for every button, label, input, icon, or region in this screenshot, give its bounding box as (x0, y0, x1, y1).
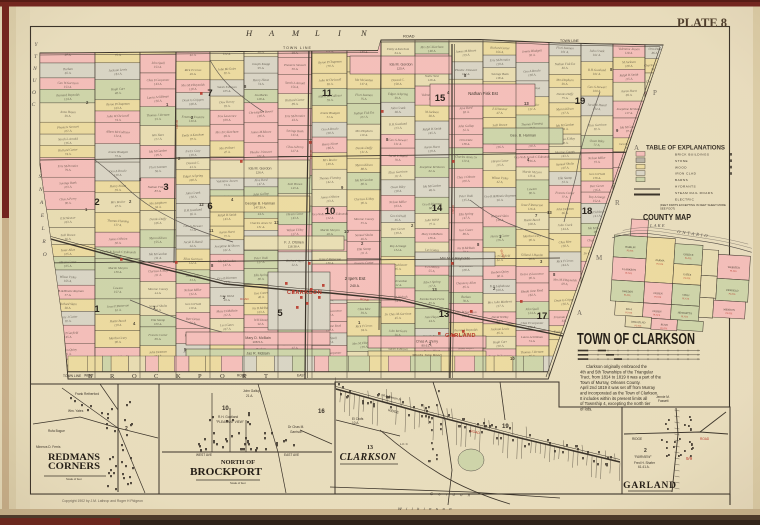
svg-text:IRON CLAD: IRON CLAD (675, 172, 697, 176)
svg-text:Scale of feet: Scale of feet (230, 481, 246, 485)
svg-text:CHILI: CHILI (682, 294, 689, 297)
svg-text:K: K (176, 373, 181, 380)
svg-text:TOWN OF CLARKSON: TOWN OF CLARKSON (577, 331, 695, 348)
svg-text:COUNTY MAP: COUNTY MAP (643, 213, 691, 222)
svg-text:TOWN LINE: TOWN LINE (560, 39, 580, 43)
svg-text:L.F. C: L.F. C (400, 442, 409, 446)
svg-text:BROCKPORT: BROCKPORT (190, 467, 262, 478)
svg-text:126 A.: 126 A. (256, 171, 265, 175)
svg-text:PLATE: PLATE (627, 249, 635, 252)
svg-text:4th and 5th Townships of the T: 4th and 5th Townships of the Triangular (580, 369, 654, 374)
svg-text:19: 19 (502, 424, 509, 430)
svg-text:WEST AVE: WEST AVE (196, 453, 212, 457)
svg-text:C: C (32, 102, 36, 108)
svg-text:2: 2 (644, 448, 647, 454)
svg-text:STONE: STONE (675, 159, 688, 163)
svg-text:RIGA: RIGA (626, 308, 633, 311)
svg-text:Scale of feet: Scale of feet (66, 477, 82, 481)
svg-text:SEE FOOT): SEE FOOT) (660, 207, 675, 211)
svg-text:WEST: WEST (84, 374, 94, 378)
svg-text:118.38 A.: 118.38 A. (288, 245, 301, 249)
svg-text:R: R (41, 239, 46, 245)
svg-text:15: 15 (435, 93, 446, 104)
svg-text:M: M (596, 254, 603, 262)
svg-text:14: 14 (432, 203, 443, 214)
svg-text:16: 16 (318, 409, 325, 415)
svg-text:PLATE: PLATE (681, 315, 689, 318)
svg-text:O: O (132, 373, 137, 380)
svg-text:April 2nd 1819 it was set off: April 2nd 1819 it was set off from Murra… (580, 385, 656, 390)
svg-text:It includes within its present: It includes within its present limits al… (580, 396, 647, 401)
svg-text:E: E (40, 213, 45, 219)
svg-text:BARNS: BARNS (675, 178, 688, 182)
svg-text:10: 10 (344, 229, 349, 234)
svg-text:Mrs M.V. Reynolds: Mrs M.V. Reynolds (440, 257, 470, 261)
svg-text:ROAD: ROAD (451, 205, 455, 215)
svg-text:PLATE: PLATE (683, 277, 691, 280)
svg-text:R: R (615, 199, 620, 207)
svg-text:18: 18 (582, 206, 593, 217)
svg-text:Frank Retherford: Frank Retherford (75, 392, 99, 396)
svg-text:TOWN LINE: TOWN LINE (63, 374, 82, 378)
svg-text:Garrison: Garrison (290, 430, 302, 434)
svg-text:1: 1 (94, 304, 100, 315)
svg-text:R: R (110, 373, 115, 380)
svg-text:21 A.: 21 A. (246, 394, 253, 398)
svg-text:O: O (220, 373, 225, 380)
svg-text:A: A (39, 200, 44, 206)
svg-text:13: 13 (547, 210, 552, 215)
svg-text:BRICK BUILDINGS: BRICK BUILDINGS (675, 153, 710, 157)
svg-text:11: 11 (209, 228, 214, 233)
svg-text:Jas R. McBain: Jas R. McBain (246, 352, 269, 356)
svg-text:H: H (245, 28, 253, 38)
svg-text:L: L (41, 226, 45, 232)
svg-text:CLARKSON: CLARKSON (340, 452, 397, 463)
svg-text:PLATE: PLATE (730, 270, 738, 273)
svg-text:PLATE: PLATE (656, 263, 664, 266)
svg-text:"FAIRVIEW": "FAIRVIEW" (634, 455, 652, 459)
svg-text:Clarkson originally embraced: Clarkson originally embraced the (586, 364, 648, 369)
svg-text:ELECTRIC: ELECTRIC (675, 197, 695, 201)
svg-text:GATES: GATES (683, 273, 692, 277)
svg-text:PLATE: PLATE (729, 293, 737, 296)
svg-text:12: 12 (199, 202, 204, 207)
svg-text:R.H. Gootland: R.H. Gootland (218, 415, 238, 419)
svg-text:Wm. Yates: Wm. Yates (68, 409, 84, 413)
svg-text:Lawton157 A.: Lawton157 A. (112, 286, 123, 294)
svg-text:PLATE: PLATE (725, 312, 733, 315)
svg-text:PLATE: PLATE (685, 257, 693, 260)
svg-text:RUSH: RUSH (661, 323, 668, 326)
svg-text:Geo. B. Harman: Geo. B. Harman (510, 134, 536, 138)
svg-text:147.30 A.: 147.30 A. (254, 206, 267, 210)
svg-text:John Gallup: John Gallup (243, 389, 260, 393)
svg-text:PLATE 8: PLATE 8 (677, 15, 727, 30)
svg-text:ROAD: ROAD (237, 374, 247, 378)
svg-text:L: L (314, 28, 320, 38)
svg-text:GREECE: GREECE (683, 253, 694, 257)
svg-text:13: 13 (367, 445, 373, 451)
svg-text:Minerva D. Ferris: Minerva D. Ferris (36, 445, 61, 449)
svg-text:HYDRANTS: HYDRANTS (675, 185, 696, 189)
svg-text:RIDGE: RIDGE (632, 437, 642, 441)
svg-text:HAMLIN: HAMLIN (625, 246, 636, 250)
svg-text:Rufa Bogue: Rufa Bogue (48, 429, 65, 433)
svg-text:STEAM RAIL ROADS: STEAM RAIL ROADS (675, 191, 713, 195)
svg-text:OGDEN: OGDEN (653, 292, 662, 296)
svg-text:13: 13 (432, 287, 437, 292)
svg-text:10: 10 (510, 356, 515, 361)
svg-text:O: O (43, 252, 47, 258)
svg-text:of Township 4, excepting the: of Township 4, excepting the north tier (580, 401, 651, 406)
svg-text:PLATE: PLATE (660, 327, 668, 330)
svg-text:M: M (291, 28, 300, 38)
svg-text:O: O (32, 90, 36, 96)
svg-text:A: A (634, 144, 639, 152)
svg-text:2: 2 (125, 426, 128, 432)
svg-text:240 A.: 240 A. (350, 284, 360, 288)
svg-text:and incorporated as the Tow: and incorporated as the Town of Clarkson… (580, 391, 658, 396)
svg-text:P: P (653, 89, 657, 97)
svg-text:CORNERS: CORNERS (48, 462, 100, 472)
svg-text:A: A (577, 309, 582, 317)
svg-text:PLATE: PLATE (653, 313, 661, 316)
svg-text:ROAD: ROAD (175, 120, 179, 130)
svg-text:13: 13 (524, 101, 529, 106)
svg-text:125 A.: 125 A. (397, 67, 406, 71)
svg-text:7: 7 (207, 88, 212, 99)
svg-text:ROAD: ROAD (700, 437, 710, 441)
svg-text:P: P (198, 373, 202, 380)
svg-text:PLATE: PLATE (625, 272, 633, 275)
svg-text:N: N (32, 66, 37, 72)
svg-text:19: 19 (575, 96, 586, 107)
svg-text:ROAD: ROAD (309, 150, 313, 160)
svg-text:6: 6 (207, 201, 212, 212)
svg-text:LAKE: LAKE (649, 223, 666, 228)
svg-text:PLATE: PLATE (682, 297, 690, 300)
svg-text:NORTH OF: NORTH OF (221, 459, 255, 466)
svg-text:Fassett: Fassett (658, 399, 669, 403)
svg-text:3: 3 (163, 182, 168, 193)
svg-text:WOOD: WOOD (675, 165, 687, 169)
svg-text:Copyright 1902 by J.M. Lathrop: Copyright 1902 by J.M. Lathrop and Roger… (62, 499, 143, 503)
svg-text:"PLEASANT VIEW": "PLEASANT VIEW" (216, 420, 244, 424)
svg-text:GARLAND: GARLAND (623, 481, 677, 491)
svg-text:S: S (39, 174, 42, 180)
svg-text:PLATE: PLATE (625, 311, 633, 314)
svg-text:ROAD: ROAD (240, 297, 250, 301)
svg-text:TOWN LINE: TOWN LINE (283, 46, 312, 50)
svg-text:PLATE: PLATE (624, 294, 632, 297)
svg-text:10 A.: 10 A. (352, 421, 359, 425)
svg-text:EAST AVE: EAST AVE (284, 453, 299, 457)
svg-text:Nathan Fisk Est: Nathan Fisk Est (468, 91, 498, 96)
svg-text:OGDEN: OGDEN (652, 310, 661, 314)
svg-text:13: 13 (274, 220, 279, 225)
svg-text:2: 2 (94, 197, 99, 208)
svg-text:17: 17 (537, 311, 548, 322)
svg-text:GARLAND: GARLAND (445, 333, 476, 339)
svg-text:A: A (268, 28, 275, 38)
svg-text:N: N (38, 187, 43, 193)
svg-text:PARMA: PARMA (655, 259, 664, 263)
svg-text:10: 10 (222, 406, 229, 412)
svg-text:11: 11 (322, 88, 333, 99)
svg-text:5: 5 (277, 308, 283, 319)
svg-text:PLATE: PLATE (634, 324, 642, 327)
svg-text:10: 10 (325, 206, 336, 217)
svg-text:W i l k i n s o n: W i l k i n s o n (398, 507, 453, 511)
svg-text:13: 13 (439, 309, 450, 320)
svg-text:TABLE OF EXPLANATIONS: TABLE OF EXPLANATIONS (646, 145, 725, 152)
svg-text:C: C (154, 373, 158, 380)
svg-text:2 Ipe's Est: 2 Ipe's Est (345, 276, 367, 281)
svg-text:108.5 A.: 108.5 A. (252, 340, 263, 344)
svg-text:Dr Chas M.: Dr Chas M. (288, 425, 304, 429)
svg-text:61.41 A.: 61.41 A. (638, 465, 650, 469)
svg-text:EAST: EAST (297, 374, 306, 378)
svg-text:Tract, from 1814 to 1819 it wa: Tract, from 1814 to 1819 it was a part o… (580, 375, 662, 380)
svg-text:PLATE: PLATE (654, 295, 662, 298)
svg-text:T: T (264, 373, 268, 380)
svg-text:ROAD: ROAD (403, 34, 415, 39)
svg-text:9/9: 9/9 (686, 456, 693, 461)
svg-text:Town of Murray, Orleans County: Town of Murray, Orleans County. (580, 380, 641, 385)
